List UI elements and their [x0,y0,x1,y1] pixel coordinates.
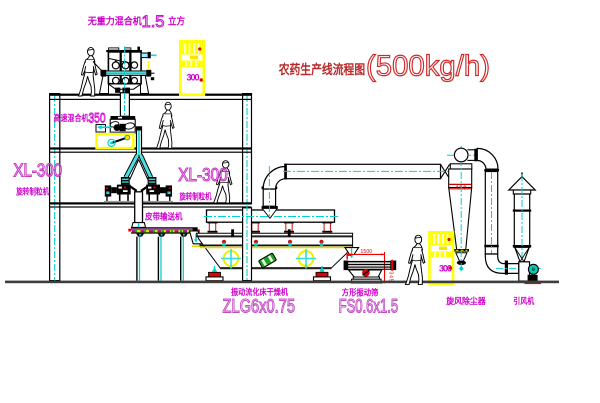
svg-text:立方: 立方 [168,16,185,28]
svg-text:高速混合机: 高速混合机 [54,112,89,123]
svg-text:农药生产线流程图: 农药生产线流程图 [278,62,365,77]
svg-text:350: 350 [89,110,106,125]
svg-text:FS0.6x1.5: FS0.6x1.5 [339,297,399,318]
svg-text:旋转制粒机: 旋转制粒机 [179,191,212,202]
svg-text:XL-300: XL-300 [178,165,228,185]
svg-text:345: 345 [388,272,394,282]
svg-text:皮带输送机: 皮带输送机 [144,211,183,222]
svg-text:300: 300 [187,73,200,83]
svg-text:旋风除尘器: 旋风除尘器 [445,295,486,306]
svg-text:XL-300: XL-300 [14,160,63,180]
svg-text:旋转制粒机: 旋转制粒机 [15,186,49,197]
svg-text:ZLG6x0.75: ZLG6x0.75 [223,297,296,318]
svg-text:1.5: 1.5 [142,13,165,31]
svg-text:引风机: 引风机 [513,295,534,306]
svg-text:无重力混合机: 无重力混合机 [87,16,142,28]
svg-text:(500kg/h): (500kg/h) [366,51,490,83]
svg-text:1500: 1500 [361,249,373,255]
